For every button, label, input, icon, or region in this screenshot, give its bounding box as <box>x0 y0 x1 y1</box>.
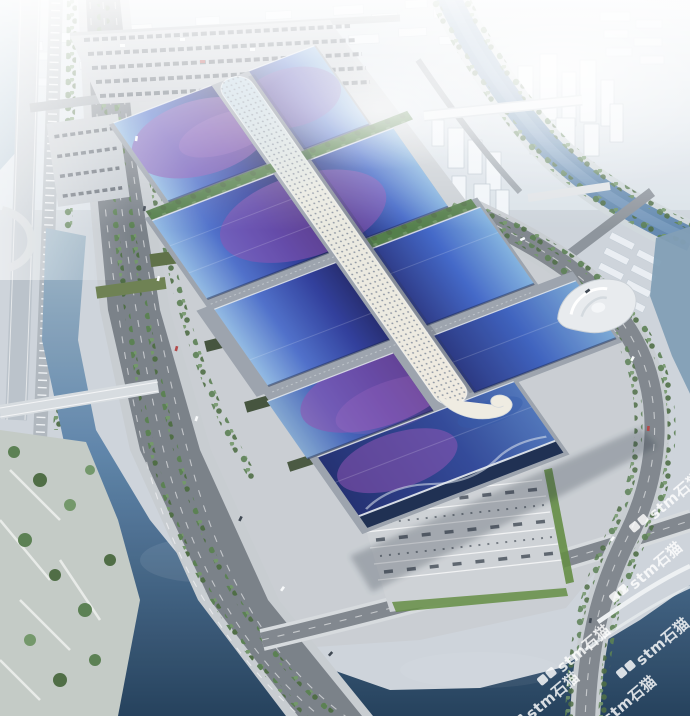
atmospheric-haze <box>0 0 690 716</box>
aerial-rendering: stm石猫 stm石猫 stm石猫 stm石猫 <box>0 0 690 716</box>
